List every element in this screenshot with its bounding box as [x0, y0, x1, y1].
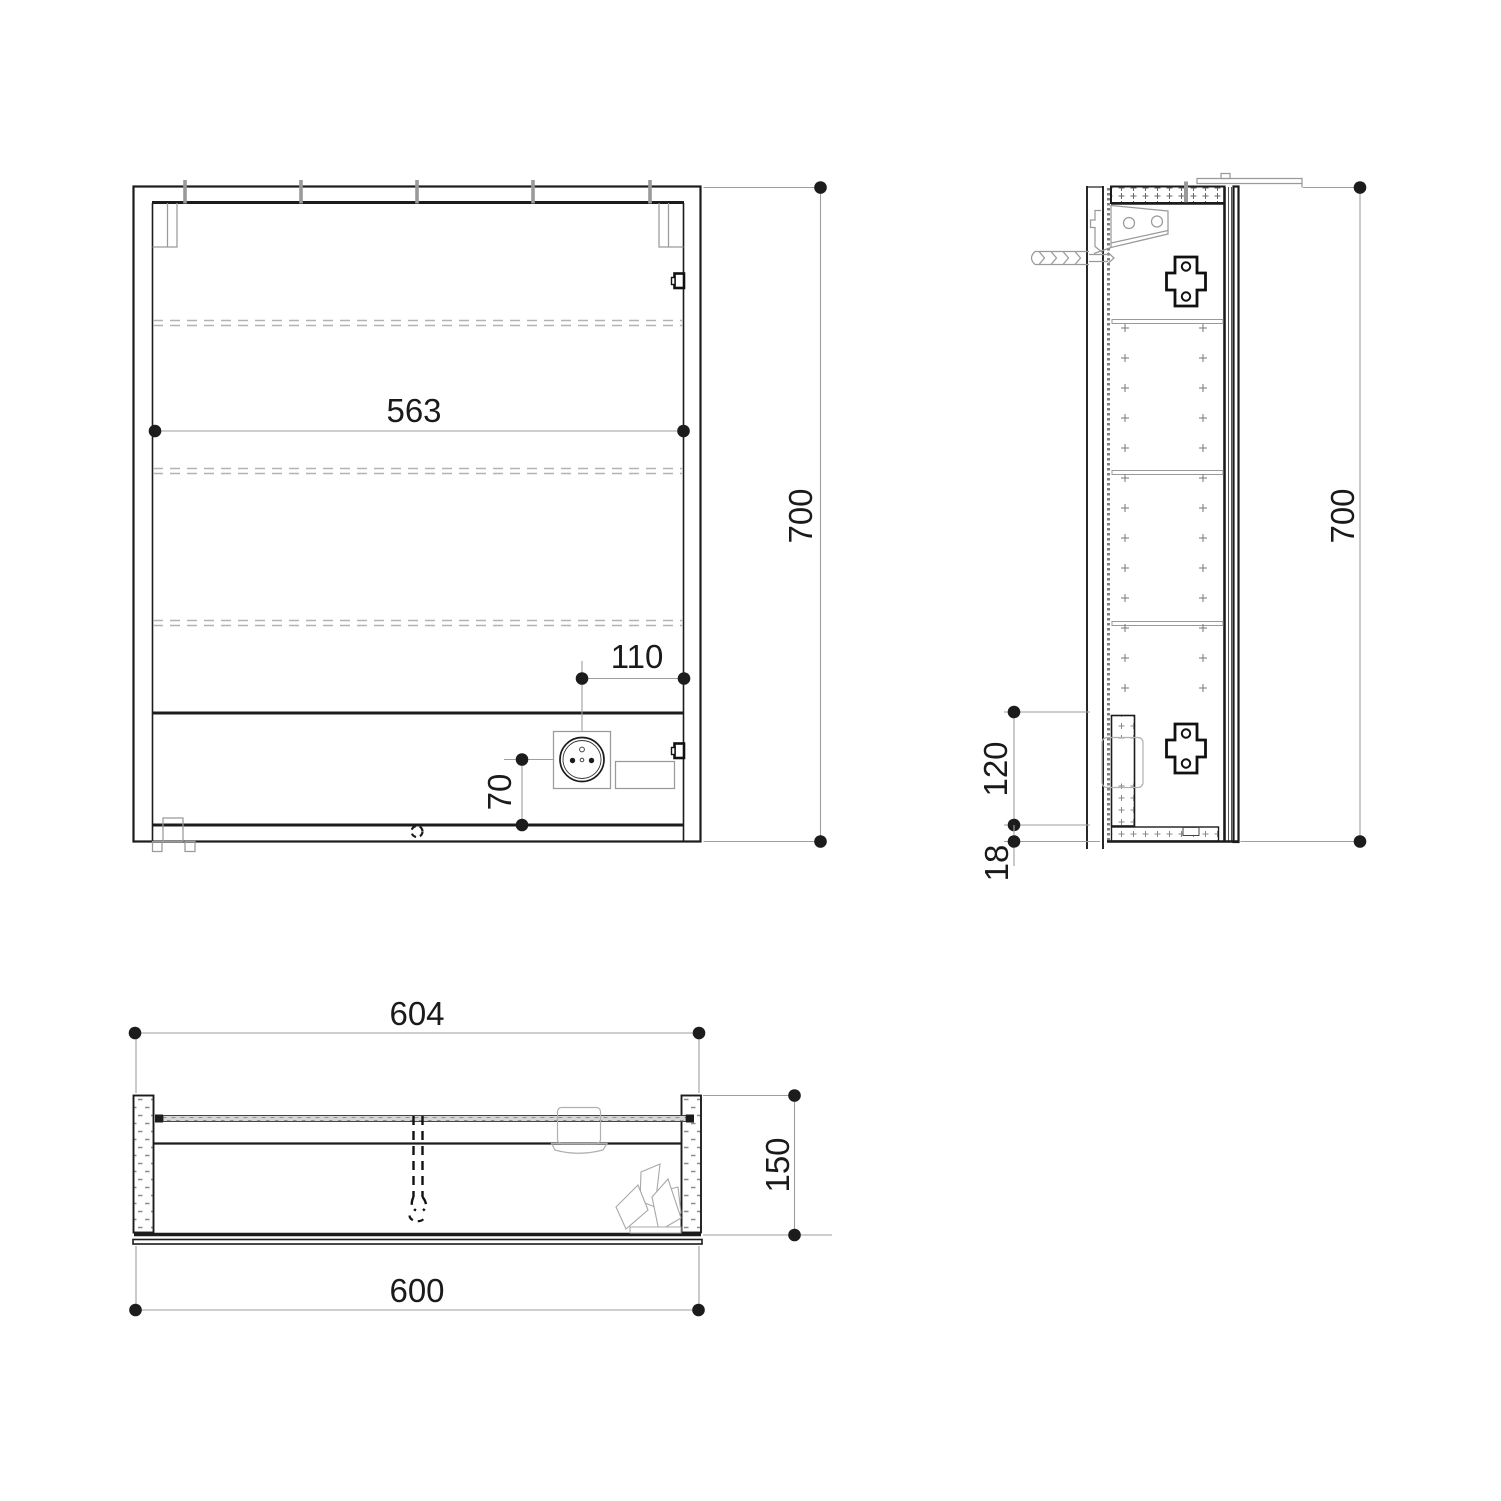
shelf-section [1112, 320, 1223, 324]
technical-drawing-page: 563 700 110 70 [0, 0, 1501, 1501]
side-wall-section-left [134, 1096, 154, 1233]
dim-label-bottom-thickness: 18 [978, 845, 1015, 882]
cabinet-drawing-canvas: 563 700 110 70 [0, 0, 1501, 1501]
cable-grommet-icon [412, 826, 423, 837]
dimension-carcass-width: 600 [129, 1246, 705, 1316]
dim-label-side-height: 700 [1324, 488, 1361, 543]
plan-view [133, 1096, 702, 1245]
dim-label-front-height: 700 [782, 488, 819, 543]
shelf-section [1112, 622, 1223, 626]
dimension-bottom-thickness: 18 [978, 825, 1100, 881]
dim-label-inner-width: 563 [386, 392, 441, 429]
junction-box [616, 762, 675, 789]
dimension-socket-zone-height: 120 [977, 706, 1090, 832]
cabinet-outline [134, 187, 701, 842]
dim-label-socket-offset-y: 70 [481, 774, 518, 811]
top-dowel-marks [183, 180, 652, 204]
led-driver-box [552, 1108, 608, 1154]
dim-label-overall-width: 604 [389, 995, 444, 1032]
dimension-inner-width: 563 [149, 392, 690, 437]
dowel-mark-icon [415, 180, 419, 204]
dim-label-socket-offset-x: 110 [611, 638, 664, 675]
dimension-socket-offset-y: 70 [481, 753, 553, 831]
mounting-foot-icon [153, 818, 196, 852]
mirror-door-section [1234, 187, 1239, 843]
corner-bracket-left-icon [153, 203, 178, 247]
hinge-plate-icon [1167, 257, 1206, 306]
dowel-mark-icon [1184, 182, 1188, 204]
shelf-position-lines [153, 321, 683, 626]
dimension-depth: 150 [703, 1089, 832, 1241]
wall-anchor-icon [1032, 252, 1115, 265]
top-panel-section [1111, 187, 1225, 204]
dimension-overall-width: 604 [129, 995, 706, 1093]
side-view [1032, 174, 1303, 850]
power-plug-icon [616, 1164, 681, 1233]
corner-bracket-right-icon [659, 203, 684, 247]
magnetic-catch-icon [672, 274, 685, 289]
dim-label-carcass-width: 600 [389, 1272, 444, 1309]
door-edge-strip [133, 1240, 702, 1245]
front-view [134, 180, 701, 852]
power-socket-icon [554, 732, 611, 789]
magnetic-catch-icon [672, 744, 685, 759]
mirror-strip-section [155, 1115, 694, 1123]
top-trim-flange [1197, 174, 1302, 188]
shelf-section [1112, 471, 1223, 475]
front-dimensions: 563 700 110 70 [149, 181, 827, 848]
plan-dimensions: 604 150 600 [129, 995, 832, 1316]
dimension-front-height: 700 [704, 181, 827, 848]
dowel-mark-icon [183, 180, 187, 204]
dowel-mark-icon [648, 180, 652, 204]
dowel-mark-icon [299, 180, 303, 204]
shelf-pin-holes [1121, 324, 1207, 692]
dimension-side-height: 700 [1241, 181, 1367, 848]
dim-label-depth: 150 [759, 1137, 796, 1192]
hinge-plate-icon [1167, 724, 1206, 773]
dimension-socket-offset-x: 110 [576, 638, 691, 732]
dim-label-socket-zone: 120 [977, 741, 1014, 796]
bottom-light-strip [1112, 827, 1219, 841]
power-cable-icon [410, 1116, 426, 1221]
dowel-mark-icon [531, 180, 535, 204]
